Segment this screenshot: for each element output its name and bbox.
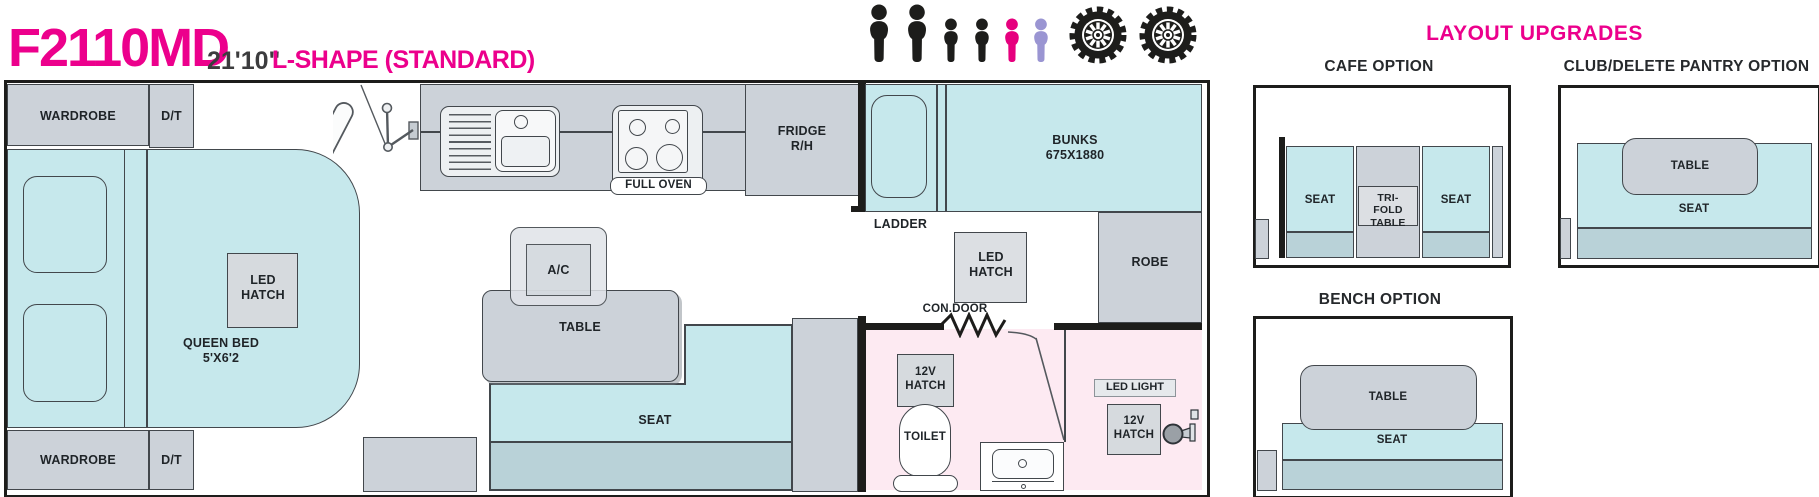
toilet-12v-hatch-label: 12V HATCH [902,366,949,393]
caravan-floorplan-sheet: F2110MD 21'10" L-SHAPE (STANDARD) [0,0,1819,497]
wall-bathroom-top-left [866,323,944,330]
vanity-knob-icon [1021,484,1026,489]
bench-seat-label: SEAT [1342,434,1442,448]
cafe-wall [1279,137,1285,258]
dt-bottom-label: D/T [149,453,194,468]
robe-label: ROBE [1098,255,1202,270]
seat-label: SEAT [600,413,710,428]
cafe-side-strip [1492,146,1503,258]
bench-table-label: TABLE [1338,391,1438,405]
fridge-label: FRIDGE R/H [772,124,832,154]
burner-icon [629,119,646,136]
burner-icon [656,144,683,171]
club-table-label: TABLE [1640,160,1740,174]
wardrobe-bottom-label: WARDROBE [12,453,144,468]
toilet-base [893,475,958,492]
layout-name: L-SHAPE (STANDARD) [272,48,535,73]
wall-bathroom-top-right [1054,323,1202,330]
capacity-icons [850,2,1210,66]
model-title: F2110MD [8,21,228,75]
bed-led-hatch-label: LED HATCH [238,273,288,303]
queen-bed-size-text: 5'X6'2 [151,351,291,366]
bench-side-cabinet [1257,450,1277,491]
club-backrest [1577,228,1812,259]
cafe-backrest-left [1286,232,1354,258]
bunk-divider-line [936,85,938,211]
ac-label: A/C [528,263,589,278]
offroad-wheel-icon [1073,10,1124,61]
pillow [23,304,107,402]
dinette-cabinet [792,318,858,492]
dt-top-label: D/T [149,109,194,124]
person-icons-group [870,5,1048,63]
burner-icon [625,147,648,170]
hall-led-hatch-label: LED HATCH [966,250,1016,280]
cafe-option-title: CAFE OPTION [1279,58,1479,76]
child-icon [975,19,989,63]
sink-basin [501,136,550,167]
sink-tap-icon [514,115,528,129]
club-option-title: CLUB/DELETE PANTRY OPTION [1548,58,1819,76]
cafe-seat-right [1422,146,1490,232]
tv-swivel-arm-icon [333,82,428,217]
child-icon [1034,19,1048,63]
model-length: 21'10" [207,49,280,74]
wall-bathroom-left [858,316,866,492]
vanity-drawer-line [992,481,1054,482]
pillow [23,176,107,273]
shower-head-icon [1152,408,1202,456]
wardrobe-top-label: WARDROBE [12,109,144,124]
club-seat-label: SEAT [1644,203,1744,217]
entry-step [363,437,477,492]
toilet-label: TOILET [890,431,960,445]
bed-divider-line [146,150,148,427]
seat-backrest [490,442,792,490]
bunks-text: BUNKS [995,133,1155,148]
cafe-seat-left [1286,146,1354,232]
full-oven-label: FULL OVEN [610,177,707,195]
vanity-tap-icon [1018,459,1027,468]
offroad-wheel-icon [1143,10,1194,61]
shower-12v-hatch-label: 12V HATCH [1111,415,1157,442]
wheel-icons-group [1073,10,1194,61]
upgrades-title: LAYOUT UPGRADES [1392,22,1677,46]
cafe-side-cabinet [1255,219,1269,259]
sink-drainer-icon [449,114,491,170]
adult-icon [908,5,926,63]
ladder-label: LADDER [858,217,943,232]
queen-bed-text: QUEEN BED [151,336,291,351]
shower-partition [1064,330,1066,442]
bench-backrest [1282,460,1503,490]
door-swing-icon [1000,328,1070,446]
burner-icon [665,119,680,134]
adult-icon [870,5,888,63]
led-light-label: LED LIGHT [1094,379,1176,397]
bunk-divider-line [945,85,947,211]
cafe-trifold-table-label: TRI-FOLD TABLE [1363,192,1413,229]
bunk-ladder [871,95,927,198]
queen-bed-label: QUEEN BED5'X6'2 [151,336,291,366]
cafe-backrest-right [1422,232,1490,258]
cafe-seat-right-label: SEAT [1422,194,1490,208]
club-side-cabinet [1560,218,1571,259]
bench-option-title: BENCH OPTION [1280,291,1480,309]
cafe-seat-left-label: SEAT [1286,194,1354,208]
child-icon [1005,19,1019,63]
table-label: TABLE [525,320,635,335]
bunks-size-text: 675X1880 [995,148,1155,163]
bunks-label: BUNKS675X1880 [995,133,1155,163]
concertina-door-icon [941,312,1007,338]
child-icon [944,19,958,63]
